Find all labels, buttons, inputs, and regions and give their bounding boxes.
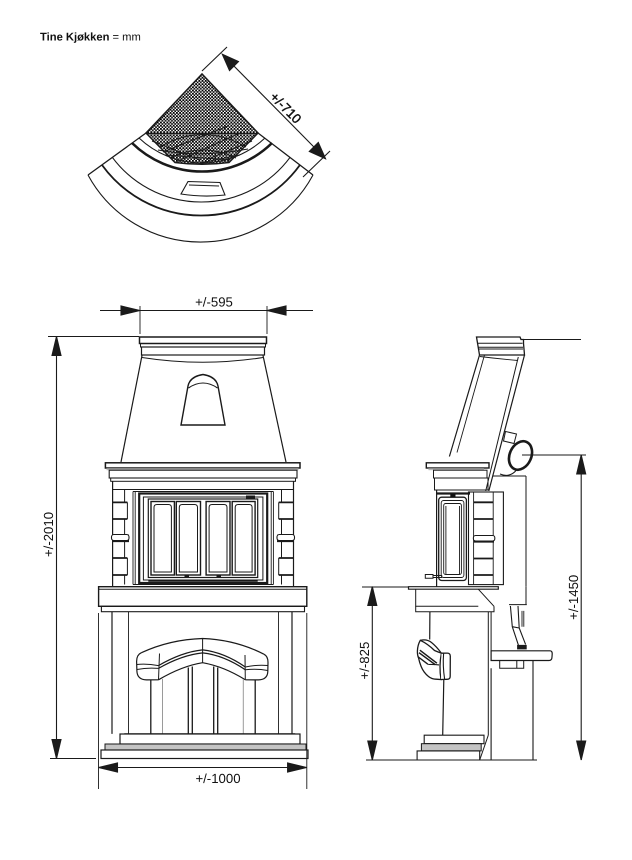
svg-text:+/-2010: +/-2010 <box>41 512 56 557</box>
svg-text:+/-1450: +/-1450 <box>566 575 581 620</box>
svg-text:+/-825: +/-825 <box>357 642 372 680</box>
svg-text:Tine Kjøkken = mm: Tine Kjøkken = mm <box>40 32 141 44</box>
svg-text:+/-595: +/-595 <box>195 295 233 310</box>
svg-text:+/-710: +/-710 <box>267 89 304 126</box>
svg-text:+/-1000: +/-1000 <box>195 771 240 786</box>
